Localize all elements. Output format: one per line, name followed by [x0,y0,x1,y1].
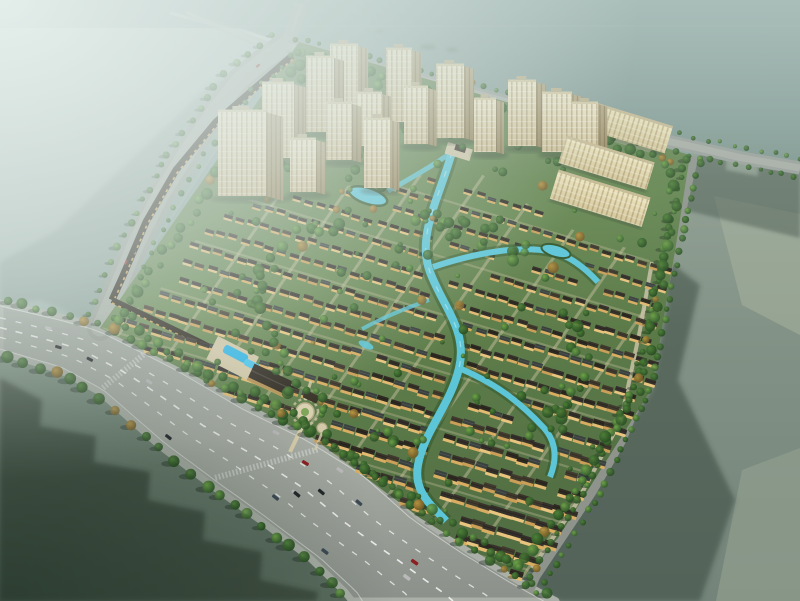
tree [429,72,434,77]
tree [126,297,134,305]
tree [349,409,358,418]
tree [64,373,76,385]
tree [542,406,554,418]
tree [547,571,552,576]
tree [680,225,688,233]
tree [541,588,552,599]
tree [134,211,139,216]
tree [271,533,282,544]
tower-penthouse [516,76,526,80]
highrise-tower [322,98,366,167]
tree [445,233,454,242]
tree [650,373,658,381]
tower-penthouse [551,88,562,92]
tower-windows [474,100,496,152]
tree [589,455,600,466]
highrise-tower [471,94,508,159]
tower-side-windows [496,100,504,154]
tree [211,139,218,146]
tree [541,579,548,586]
tree [408,447,419,458]
tree [269,32,275,38]
tree [313,220,319,226]
tree [498,167,507,176]
tree [516,391,526,401]
tree [141,279,150,288]
tree [333,206,340,213]
tree [471,546,478,553]
tree [262,348,270,356]
tree [531,533,543,545]
tree [271,74,276,79]
tree [294,59,306,71]
tree [93,393,105,405]
tree [174,348,183,357]
tree [185,469,196,480]
tree [759,150,764,155]
tree [301,420,310,429]
tree [193,209,201,217]
tree [186,177,192,183]
tree [290,59,294,63]
tree [535,556,543,564]
tree [592,500,598,506]
tree [461,354,466,359]
tree [455,273,460,278]
tree [166,218,171,223]
tree [394,369,402,377]
tree [628,426,635,433]
tree [311,341,316,346]
tree [661,160,669,168]
tree [203,378,209,384]
tree [1,351,13,363]
tree [718,160,723,165]
tree [769,170,774,175]
tree [294,49,302,57]
tree [331,443,338,450]
tree [320,315,328,323]
tree [134,325,145,336]
tree [277,241,288,252]
tree [623,437,629,443]
tree [435,222,444,231]
tree [110,406,119,415]
tree [526,574,533,581]
tree [256,399,263,406]
tree [668,228,676,236]
tree [479,438,484,443]
tree [233,59,241,67]
tree [634,373,643,382]
tower-side-windows [428,88,437,146]
tree [413,438,421,446]
tree [350,303,359,312]
tree [488,223,498,233]
tree [379,335,386,342]
tree [613,424,621,432]
tree [149,251,154,256]
tree [692,172,699,179]
tree [392,261,400,269]
tree [654,353,661,360]
tree [706,139,711,144]
tree [272,367,280,375]
tree [563,402,570,409]
tree [389,483,396,490]
tree [147,187,154,194]
tree [502,554,512,564]
tree [449,519,457,527]
tree [167,355,174,362]
tree [102,272,108,278]
tree [303,387,311,395]
tree [637,238,647,248]
tree [297,74,307,84]
tree [97,288,102,293]
tree [144,267,153,276]
tree [614,457,620,463]
tree [675,248,682,255]
tree [615,414,627,426]
tower-penthouse [481,94,489,98]
tree [651,364,659,372]
tree [398,242,403,247]
tree [774,150,779,155]
tree [337,268,346,277]
tree [585,353,593,361]
tree [459,325,469,335]
tree [645,321,655,331]
tree [590,444,596,450]
tree [522,581,530,589]
tower-penthouse [272,78,283,82]
tree [577,385,584,392]
tree [556,407,567,418]
tree [315,567,324,576]
tree [671,271,677,277]
tree [153,338,163,348]
tree [496,216,504,224]
tree [568,466,573,471]
tree [460,217,470,227]
tower-penthouse [232,106,249,110]
tree [583,310,589,316]
tree [673,148,680,155]
tree [231,329,240,338]
tree [355,251,360,256]
tree [428,518,435,525]
tree [601,480,608,487]
tree [492,166,498,172]
tree [348,187,353,192]
tower-side-windows [390,120,399,191]
tree [504,443,510,449]
tree [559,308,568,317]
tree [465,426,475,436]
tree [666,168,676,178]
tree [239,273,246,280]
tree [86,312,92,318]
tree [426,504,437,515]
tree [538,181,548,191]
highrise-tower [286,134,330,199]
tree [416,494,421,499]
tree [571,530,577,536]
tree [443,530,450,537]
tree [373,80,383,90]
tree [76,382,87,393]
tree [666,188,673,195]
tree [172,141,179,148]
tree [94,320,101,327]
tower-side-windows [316,140,325,195]
tree [128,312,137,321]
tree [668,283,675,290]
tree [455,300,465,310]
tower-side-windows [464,66,474,141]
tree [269,337,279,347]
tree [429,215,435,221]
tree [32,306,39,313]
tree [313,388,319,394]
tree [209,83,217,91]
tree [252,217,261,226]
tree [204,94,211,101]
tree [548,425,555,432]
tree [486,548,495,557]
tree [250,386,261,397]
tree [678,164,686,172]
tower-penthouse [334,98,343,102]
tree [417,295,427,305]
tree [196,164,201,169]
tree [282,365,293,376]
tree [606,468,614,476]
tree [688,195,695,202]
tree [410,215,421,226]
tree [298,551,309,562]
tree [638,405,645,412]
tree [545,547,551,553]
tree [229,211,234,216]
tree [525,497,534,506]
tree [481,538,489,546]
tree [599,431,611,443]
tree [369,432,379,442]
tree [173,233,183,243]
tree [507,255,519,267]
tree [327,577,338,588]
tree [157,244,167,254]
tower-penthouse [364,88,373,92]
tree [318,393,328,403]
tree [596,445,604,453]
tree [407,492,416,501]
tree [469,534,476,541]
tree [317,42,321,46]
tree [126,420,136,430]
tree [423,250,433,260]
tower-windows [436,66,464,138]
tree [142,432,151,441]
tree [290,409,298,417]
tree [560,502,570,512]
tree [113,243,121,251]
tree [649,312,660,323]
scene-canvas [0,0,800,601]
tower-windows [404,88,428,144]
tree [649,288,658,297]
tree [642,336,649,343]
tree [233,289,241,297]
tree [243,100,249,106]
tree [92,299,98,305]
tree [214,359,221,366]
tree [625,397,632,404]
tree [215,490,225,500]
tree [640,349,646,355]
tree [746,164,752,170]
tree [16,298,27,309]
tree [154,443,163,452]
plaza-garden-center [301,408,309,416]
tree [297,241,308,252]
tree [559,552,565,558]
tree [553,561,561,569]
tree [679,235,686,242]
tree [707,156,714,163]
tree [144,335,152,343]
highrise-tower [211,106,293,203]
tree [362,271,371,280]
tree [344,207,351,214]
aerial-rendering [0,0,800,601]
tree [378,73,385,80]
tree [378,477,388,487]
tree [140,196,145,201]
tree [490,408,496,414]
tree [501,566,508,573]
tree [445,479,453,487]
tree [733,144,737,148]
tree [440,340,445,345]
tree [517,303,526,312]
tree [410,185,417,192]
tree [283,386,293,396]
tree [540,386,548,394]
tree [66,312,74,320]
tree [190,117,196,123]
tree [488,437,493,442]
tree [677,130,682,135]
tree [322,429,332,439]
highrise-tower [360,114,404,195]
tree [168,455,180,467]
tree [305,38,311,44]
tower-windows [218,112,266,196]
tree [314,227,324,237]
tower-penthouse [372,114,381,118]
tree [150,348,158,356]
tree [572,488,579,495]
tree [623,405,631,413]
tree [257,281,267,291]
tree [192,361,203,372]
tree [570,507,576,513]
tree [351,459,359,467]
highrise-tower [400,82,441,151]
tree [682,216,689,223]
tree [128,219,135,226]
tree [183,360,191,368]
tree [547,520,555,528]
tree [580,520,586,526]
tree [319,406,327,414]
tree [443,509,448,514]
tree [237,390,244,397]
tree [377,57,383,63]
tree [659,280,668,289]
tree [578,476,587,485]
tree [120,308,130,318]
tree [292,225,301,234]
tree [664,306,669,311]
tree [256,42,263,49]
tower-side-windows [266,112,283,201]
tree [658,329,666,337]
tree [285,67,296,78]
tree [230,500,240,510]
tree [547,539,554,546]
tree [322,438,330,446]
tree [362,221,368,227]
tree [455,537,462,544]
tree [631,384,637,390]
tree [271,399,282,410]
tree [541,274,549,282]
tower-penthouse [444,60,454,64]
tree [580,491,587,498]
tree [108,259,114,265]
tree [566,494,574,502]
tree [202,481,214,493]
tree [581,464,592,475]
tree [457,528,468,539]
tree [559,383,566,390]
tree [283,539,295,551]
tree [138,274,144,280]
tree [527,544,538,555]
tree [697,159,705,167]
tree [359,463,370,474]
tree [188,219,195,226]
tree [646,345,657,356]
tree [597,490,604,497]
tower-penthouse [394,44,403,48]
tree [122,323,130,331]
tower-penthouse [411,82,419,86]
tree [572,320,584,332]
tree [268,410,276,418]
tree [47,306,57,316]
tree [662,240,674,252]
tree [201,188,213,200]
tree [652,296,658,302]
tree [674,262,680,268]
tree [525,432,534,441]
tree [533,590,539,596]
